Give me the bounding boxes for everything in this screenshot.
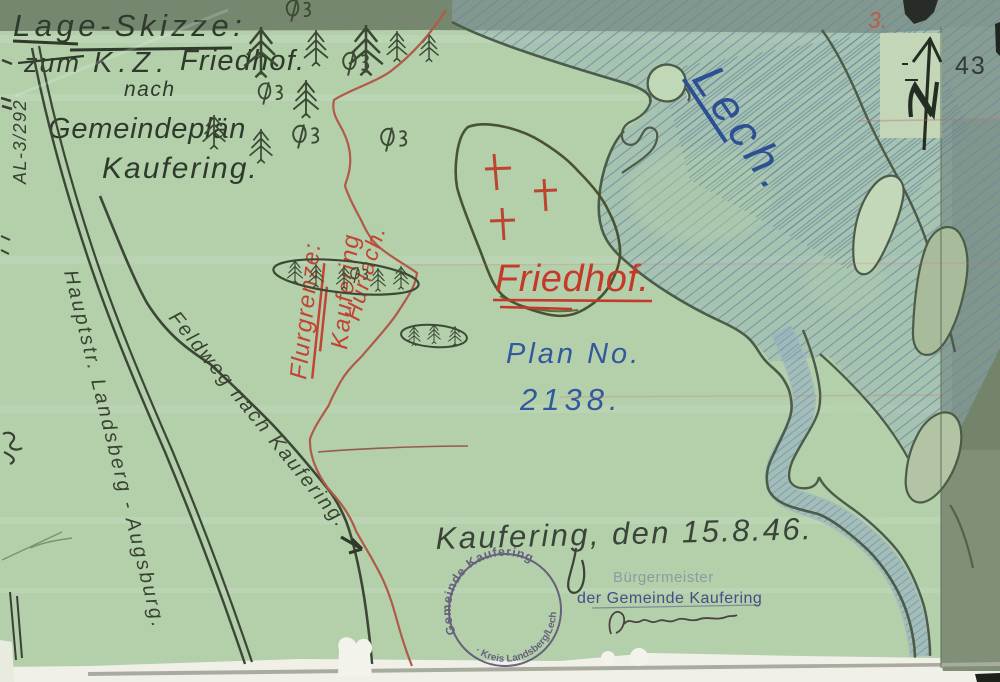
svg-text:Kaufering.: Kaufering. bbox=[102, 152, 259, 185]
svg-text:Bürgermeister: Bürgermeister bbox=[613, 569, 714, 586]
svg-text:Plan No.: Plan No. bbox=[506, 338, 641, 370]
svg-text:AL-3/292: AL-3/292 bbox=[10, 99, 30, 185]
svg-text:der Gemeinde Kaufering: der Gemeinde Kaufering bbox=[577, 590, 762, 607]
svg-text:Lage-Skizze:: Lage-Skizze: bbox=[13, 8, 246, 43]
svg-text:Friedhof.: Friedhof. bbox=[180, 45, 305, 77]
svg-text:3.: 3. bbox=[868, 7, 887, 33]
svg-text:K.Z.: K.Z. bbox=[93, 47, 170, 79]
svg-text:2138.: 2138. bbox=[519, 382, 623, 417]
svg-text:43: 43 bbox=[955, 52, 987, 80]
svg-text:Gemeindeplän: Gemeindeplän bbox=[48, 113, 246, 145]
svg-text:nach: nach bbox=[124, 78, 176, 101]
